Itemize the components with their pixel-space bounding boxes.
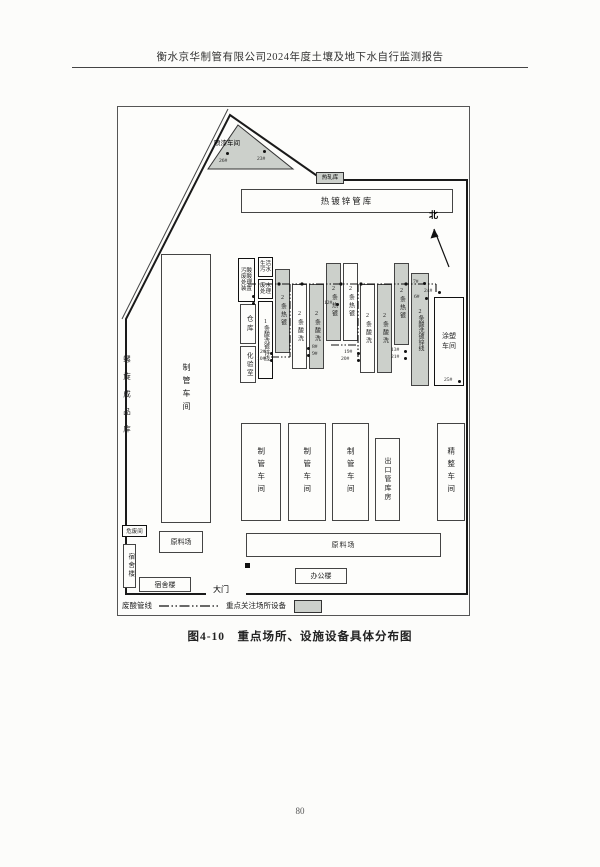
monitor-dot-26	[226, 152, 229, 155]
page-header: 衡水京华制管有限公司2024年度土壤及地下水自行监测报告	[0, 49, 600, 64]
legend-pipeline-sample	[158, 601, 220, 611]
document-page: 衡水京华制管有限公司2024年度土壤及地下水自行监测报告 热镀锌管库 喷漆车间 …	[0, 0, 600, 867]
building-warehouse: 仓库	[240, 304, 256, 344]
monitor-label-24: 24#	[424, 288, 432, 294]
building-finishing-shop: 精整车间	[437, 423, 465, 521]
figure-caption: 图4-10 重点场所、设施设备具体分布图	[0, 628, 600, 644]
building-haz-waste-room: 危废间	[122, 525, 147, 537]
building-dormitory-horizontal: 宿舍楼	[139, 577, 191, 592]
facility-wastewater-treatment: 废水处理	[258, 279, 273, 299]
building-lab: 化验室	[240, 346, 256, 383]
building-pipe-shop-c: 制管车间	[332, 423, 369, 521]
monitor-dot-b	[252, 302, 255, 305]
strip-pickling-galvanizing-line-1: 1条酸洗镀锌线	[258, 301, 273, 379]
monitor-label-12: 12#	[324, 300, 332, 306]
monitor-label-2: 2#	[260, 349, 266, 355]
north-label: 北	[429, 208, 438, 221]
monitor-label-6: 6#	[414, 294, 420, 300]
monitor-dot-10	[270, 359, 273, 362]
strip-hot-galvanizing-2: 2条热镀	[275, 269, 290, 353]
building-spiral-product-store: 螺旋成品库	[123, 355, 131, 443]
monitor-dot-a	[252, 295, 255, 298]
monitor-dot-20	[357, 359, 360, 362]
page-number: 80	[0, 806, 600, 816]
site-map-figure: 热镀锌管库 喷漆车间 热轧库 北 螺旋成品库 制管车间 污酸废酸处理装置 生活污…	[117, 106, 470, 616]
legend-pipeline-label: 废酸管线	[122, 600, 152, 611]
monitor-label-20: 20#	[341, 356, 349, 362]
monitor-dot-23	[263, 150, 266, 153]
monitor-label-10: 10#	[257, 356, 265, 362]
monitor-label-19: 19#	[344, 349, 352, 355]
legend-key-sites-label: 重点关注场所设备	[226, 600, 286, 611]
monitor-label-26: 26#	[219, 158, 227, 164]
building-raw-material-yard-long: 原料场	[246, 533, 441, 557]
strip-pickling-8: 2条酸洗	[377, 284, 392, 373]
monitor-dot-7	[423, 282, 426, 285]
monitor-label-21: 21#	[391, 354, 399, 360]
monitor-label-13: 13#	[391, 347, 399, 353]
monitor-dot-25	[458, 380, 461, 383]
legend-key-sites-swatch	[294, 600, 322, 613]
small-structure-marker	[245, 563, 250, 568]
monitor-dot-8	[307, 347, 310, 350]
building-pipe-shop-b: 制管车间	[288, 423, 326, 521]
building-office: 办公楼	[295, 568, 347, 584]
monitor-dot-2	[270, 352, 273, 355]
building-paint-shop-label: 喷漆车间	[214, 137, 240, 147]
monitor-dot-6	[425, 297, 428, 300]
building-pipe-shop-a: 制管车间	[241, 423, 281, 521]
strip-hot-galvanizing-6: 2条热镀	[343, 263, 358, 341]
building-main-pipe-shop: 制管车间	[161, 254, 211, 523]
building-galvanized-pipe-store: 热镀锌管库	[241, 189, 453, 213]
building-raw-material-yard-small: 原料场	[159, 531, 203, 553]
strip-pickling-3: 2条酸洗	[292, 284, 307, 369]
monitor-label-23: 23#	[257, 156, 265, 162]
monitor-dot-24	[438, 291, 441, 294]
monitor-label-7: 7#	[413, 279, 419, 285]
monitor-dot-13	[404, 350, 407, 353]
monitor-label-9: 9#	[312, 351, 318, 357]
header-rule	[72, 67, 528, 68]
monitor-label-8: 8#	[312, 344, 318, 350]
building-coating-shop: 涂塑车间	[434, 297, 464, 386]
building-hot-rolling-store: 热轧库	[316, 172, 344, 184]
monitor-dot-12	[336, 303, 339, 306]
building-dormitory-vertical: 宿舍楼	[123, 544, 136, 588]
facility-domestic-sewage: 生活污水	[258, 257, 273, 277]
monitor-dot-21	[404, 357, 407, 360]
strip-hot-galvanizing-9: 2条热镀	[394, 263, 409, 345]
building-export-pipe-store: 出口管库房	[375, 438, 400, 521]
strip-pickling-7: 2条酸洗	[360, 284, 375, 373]
monitor-label-25: 25#	[444, 377, 452, 383]
monitor-dot-19	[357, 352, 360, 355]
monitor-dot-9	[307, 354, 310, 357]
gate-label: 大门	[213, 584, 229, 595]
